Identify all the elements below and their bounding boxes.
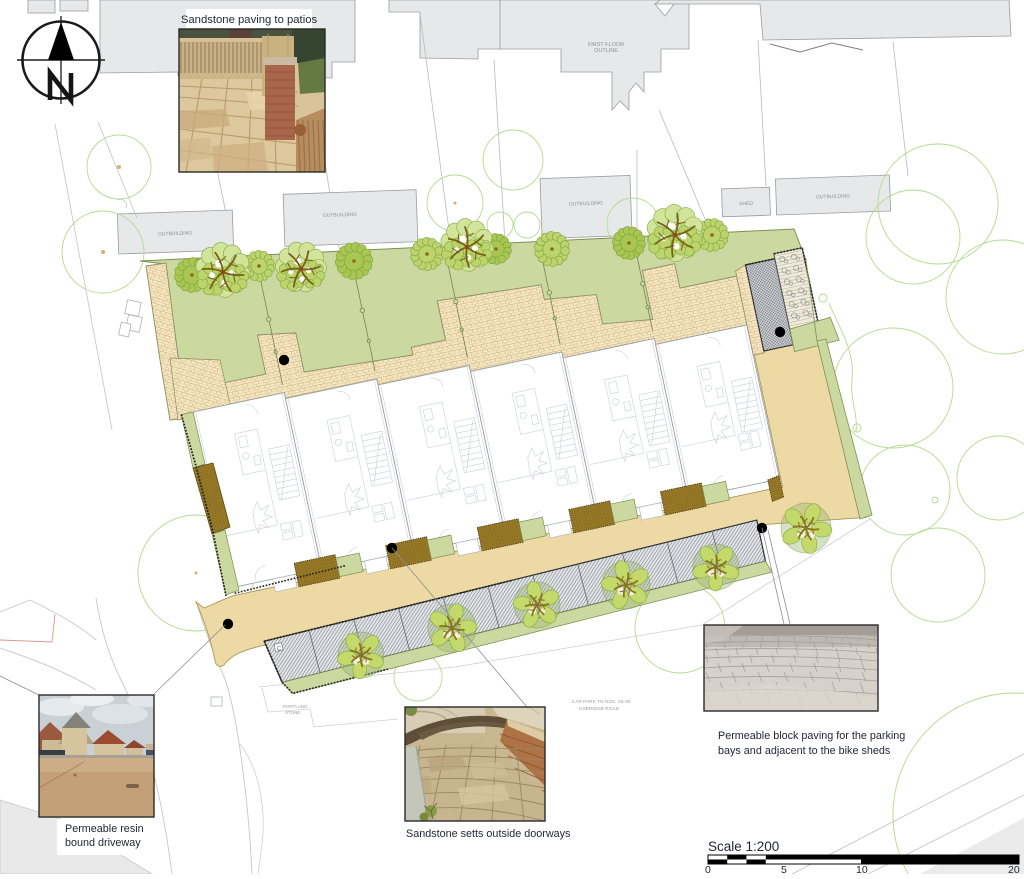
svg-text:Sandstone paving to patios: Sandstone paving to patios	[181, 14, 318, 26]
svg-text:Scale 1:200: Scale 1:200	[708, 839, 779, 854]
svg-text:20: 20	[1008, 864, 1020, 874]
svg-text:OUTBUILDING: OUTBUILDING	[816, 193, 850, 200]
svg-text:Permeable resin: Permeable resin	[65, 823, 144, 835]
svg-text:OUTBUILDING: OUTBUILDING	[323, 212, 357, 219]
svg-text:SHED: SHED	[739, 201, 753, 207]
svg-text:0: 0	[705, 864, 711, 874]
svg-text:Sandstone setts outside doorwa: Sandstone setts outside doorways	[406, 828, 571, 840]
svg-text:STONE: STONE	[285, 710, 300, 715]
svg-text:OUTBUILDING: OUTBUILDING	[158, 230, 192, 237]
svg-text:bound driveway: bound driveway	[65, 837, 141, 849]
svg-text:10: 10	[856, 864, 868, 874]
svg-text:UXBRIDGE ROAD: UXBRIDGE ROAD	[579, 706, 620, 712]
svg-text:Permeable block paving for the: Permeable block paving for the parking	[718, 730, 905, 742]
svg-text:CAR PARK TO NOS. 26-30: CAR PARK TO NOS. 26-30	[572, 699, 631, 705]
svg-text:C: C	[277, 646, 282, 652]
svg-text:5: 5	[781, 864, 787, 874]
svg-text:OUTBUILDING: OUTBUILDING	[569, 200, 603, 207]
svg-text:OUTLINE: OUTLINE	[594, 48, 618, 54]
svg-text:bays and adjacent to the bike: bays and adjacent to the bike sheds	[718, 745, 891, 757]
svg-text:PORTLAND: PORTLAND	[283, 704, 308, 709]
